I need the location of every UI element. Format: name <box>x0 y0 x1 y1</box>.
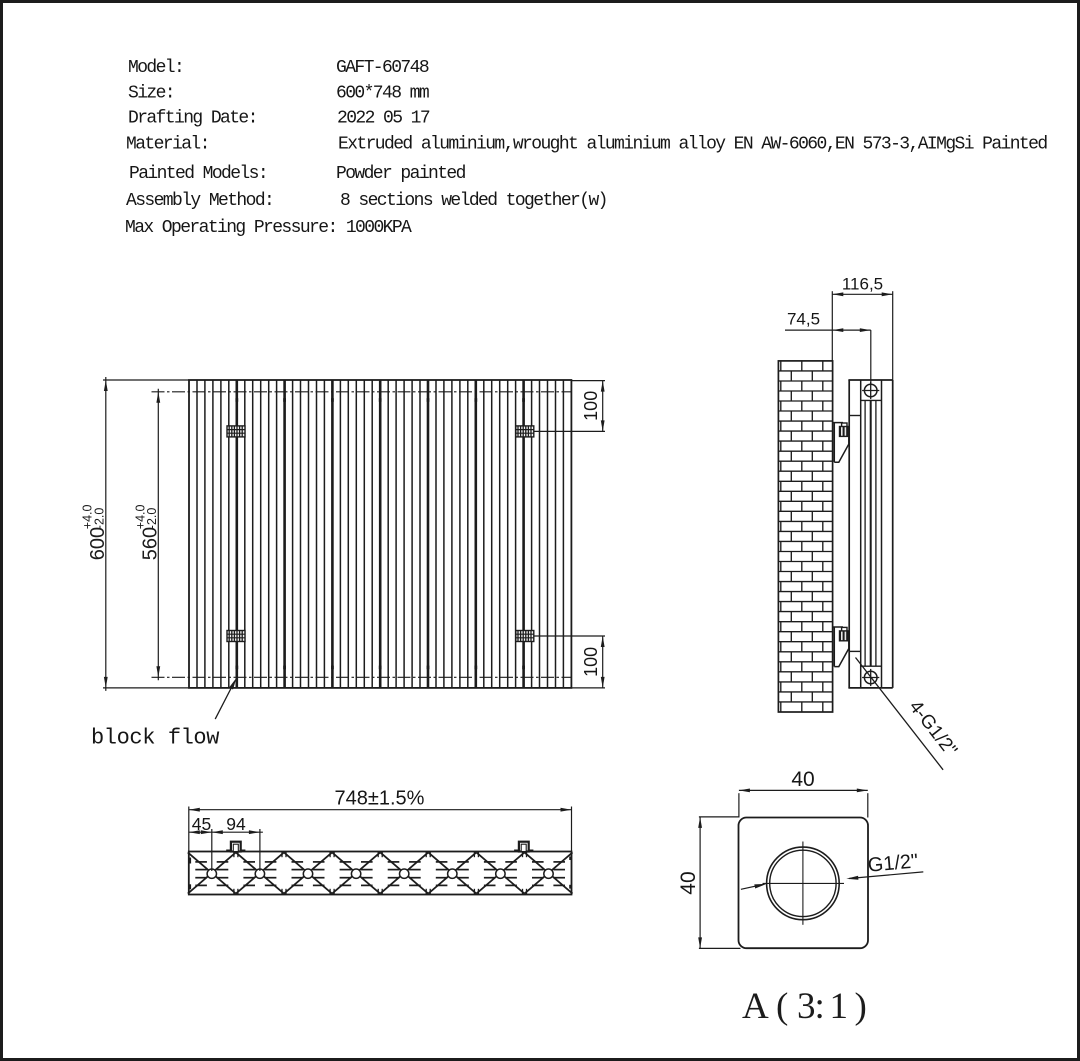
svg-text:A(3:1): A(3:1) <box>742 986 867 1027</box>
svg-text:748±1.5%: 748±1.5% <box>335 788 425 810</box>
svg-text:Drafting Date:: Drafting Date: <box>128 109 257 129</box>
svg-text:2022 05 17: 2022 05 17 <box>337 109 430 129</box>
svg-text:100: 100 <box>581 647 601 677</box>
svg-text:Assembly Method:: Assembly Method: <box>126 191 273 211</box>
svg-text:-2.0: -2.0 <box>145 508 159 530</box>
svg-text:Material:: Material: <box>126 135 209 155</box>
svg-text:600: 600 <box>87 527 109 560</box>
svg-text:94: 94 <box>226 814 246 834</box>
svg-text:74,5: 74,5 <box>787 309 820 328</box>
svg-text:40: 40 <box>791 768 814 791</box>
svg-text:-2.0: -2.0 <box>93 508 107 530</box>
svg-text:600*748 mm: 600*748 mm <box>336 84 429 104</box>
svg-text:45: 45 <box>192 814 211 834</box>
svg-text:GAFT-60748: GAFT-60748 <box>336 58 429 78</box>
svg-text:Max Operating Pressure: 1000KP: Max Operating Pressure: 1000KPA <box>125 218 412 238</box>
svg-text:block flow: block flow <box>91 726 219 751</box>
svg-text:Powder painted: Powder painted <box>336 164 466 184</box>
svg-text:40: 40 <box>677 871 700 894</box>
svg-text:4-G1/2": 4-G1/2" <box>905 697 961 761</box>
svg-text:G1/2": G1/2" <box>867 850 919 876</box>
svg-text:100: 100 <box>581 391 601 421</box>
svg-text:Extruded aluminium,wrought alu: Extruded aluminium,wrought aluminium all… <box>338 135 1047 155</box>
svg-text:Model:: Model: <box>128 58 183 78</box>
svg-text:116,5: 116,5 <box>842 274 883 293</box>
svg-text:560: 560 <box>140 527 162 560</box>
svg-text:Painted Models:: Painted Models: <box>129 164 267 184</box>
svg-text:8 sections welded together(w): 8 sections welded together(w) <box>340 191 607 211</box>
svg-text:Size:: Size: <box>128 84 174 104</box>
